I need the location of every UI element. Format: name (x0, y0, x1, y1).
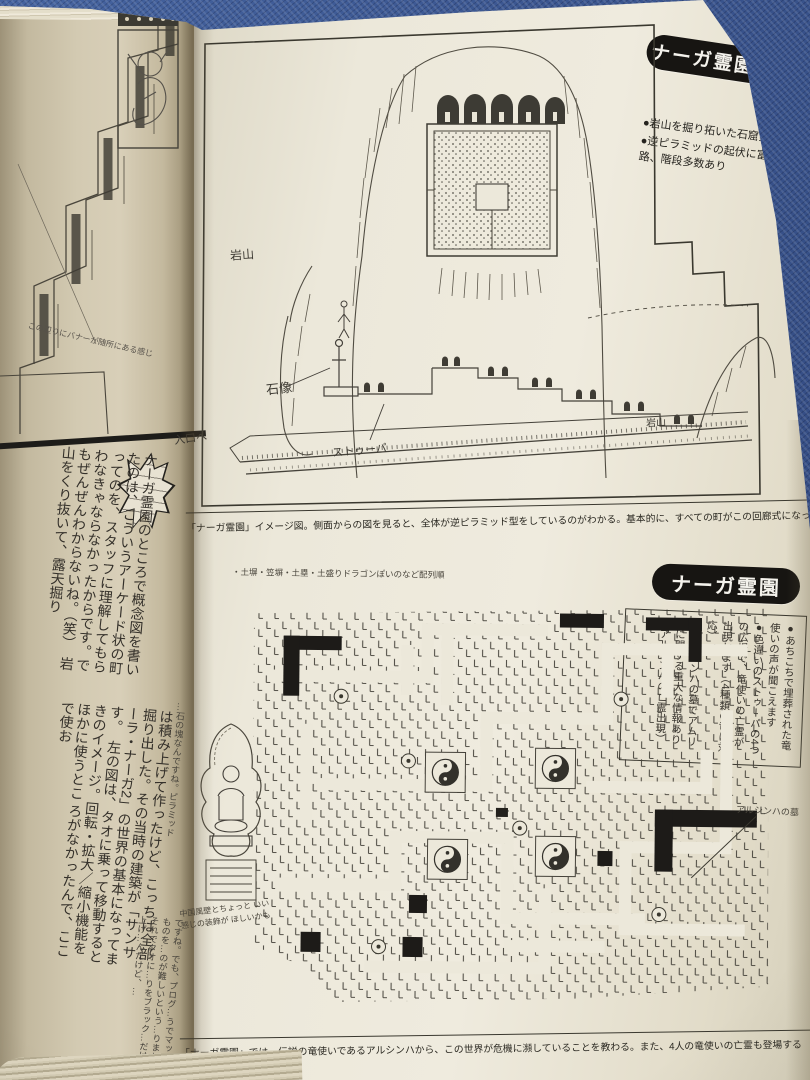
inverted-pyramid-structure (427, 124, 557, 256)
label-sekizo: 石像 (265, 377, 293, 399)
open-book: この辺りにバナーが随所にある感じ ナーガ霊園のところで概念図を書いたのは、こうい… (0, 0, 810, 1080)
right-edge-shade (786, 420, 810, 1080)
trench (230, 412, 752, 474)
label-iwayama-left: 岩山 (229, 245, 254, 264)
cemetery-maze-drawing (244, 583, 779, 1029)
left-page-wall-sketch (0, 4, 194, 436)
concept-illustration (192, 16, 777, 508)
book-spine-shadow (180, 0, 214, 1080)
figure-sketch (338, 301, 350, 338)
label-iwayama-right: 岩山 (646, 413, 667, 429)
interview-text-block-1: ナーガ霊園のところで概念図を書いたのは、こういうアーケード状の町ってのを、スタッ… (16, 443, 159, 677)
book-photo: この辺りにバナーが随所にある感じ ナーガ霊園のところで概念図を書いたのは、こうい… (0, 0, 810, 1080)
